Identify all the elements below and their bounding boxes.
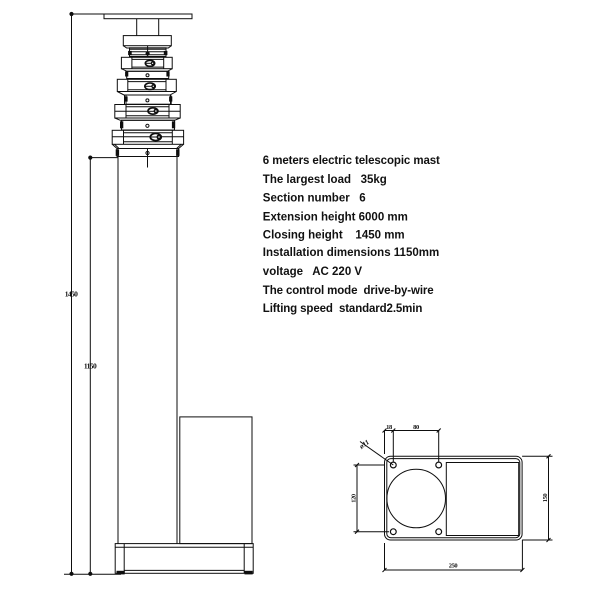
svg-text:1150: 1150 — [84, 362, 97, 371]
svg-text:Extension height 6000 mm: Extension height 6000 mm — [263, 211, 408, 223]
svg-text:18: 18 — [386, 424, 393, 431]
svg-text:Installation dimensions 1150mm: Installation dimensions 1150mm — [263, 247, 439, 259]
svg-text:1450: 1450 — [65, 290, 78, 299]
svg-text:The control mode drive-by-wir: The control mode drive-by-wire — [263, 285, 434, 297]
svg-text:6 meters electric telescopic m: 6 meters electric telescopic mast — [263, 155, 440, 167]
svg-text:Closing height 1450 mm: Closing height 1450 mm — [263, 230, 405, 242]
svg-text:120: 120 — [351, 494, 358, 503]
svg-text:Lifting speed standard2.5min: Lifting speed standard2.5min — [263, 303, 423, 315]
svg-text:150: 150 — [542, 494, 549, 503]
svg-text:voltage AC 220 V: voltage AC 220 V — [263, 266, 363, 278]
svg-text:ø11: ø11 — [357, 438, 371, 451]
svg-text:80: 80 — [413, 424, 419, 431]
svg-text:The largest load 35kg: The largest load 35kg — [263, 174, 387, 186]
svg-text:Section number 6: Section number 6 — [263, 193, 366, 205]
svg-text:250: 250 — [449, 563, 458, 570]
